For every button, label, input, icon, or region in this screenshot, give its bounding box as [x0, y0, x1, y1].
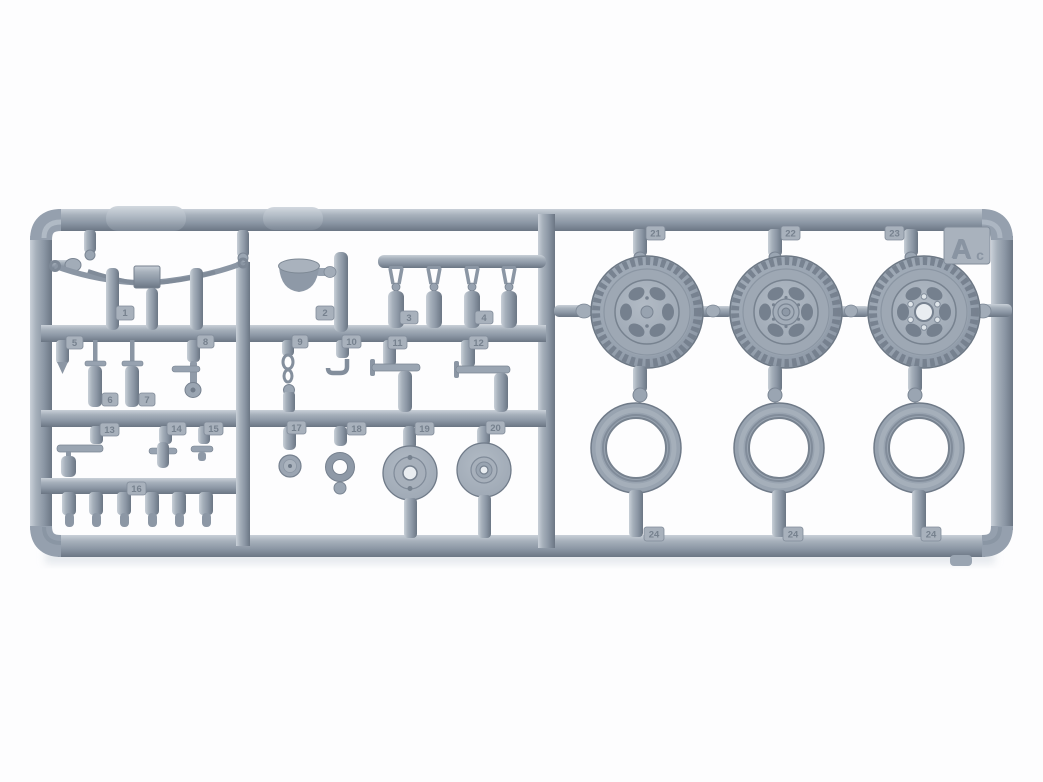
sprue-letter-plate: A A c [944, 227, 990, 265]
svg-text:5: 5 [72, 338, 78, 349]
frame-bottom-rail [58, 535, 985, 557]
tag-16: 16 [127, 482, 146, 495]
tag-4: 4 [475, 311, 493, 324]
tag-13: 13 [100, 423, 119, 436]
svg-text:10: 10 [346, 337, 357, 348]
svg-text:19: 19 [419, 424, 430, 435]
tag-10: 10 [342, 335, 361, 348]
frame-top-rail [58, 209, 985, 231]
svg-text:24: 24 [649, 530, 660, 541]
tag-14: 14 [167, 422, 186, 435]
svg-text:23: 23 [889, 229, 900, 240]
svg-text:13: 13 [104, 425, 115, 436]
svg-text:9: 9 [297, 337, 302, 348]
svg-text:8: 8 [203, 337, 208, 348]
tag-19: 19 [415, 422, 434, 435]
svg-text:20: 20 [490, 423, 501, 434]
svg-text:A: A [951, 233, 971, 264]
svg-text:21: 21 [650, 229, 661, 240]
tag-2: 2 [316, 306, 334, 320]
tag-18: 18 [347, 422, 366, 435]
frame-right-rail [991, 236, 1013, 530]
tag-3: 3 [400, 311, 418, 324]
svg-text:18: 18 [351, 424, 362, 435]
tag-5: 5 [66, 336, 83, 349]
svg-text:16: 16 [131, 484, 142, 495]
bottom-rail-tab [950, 555, 972, 566]
svg-text:14: 14 [171, 424, 182, 435]
sprue-photo: 1 2 3 4 5 6 7 8 9 10 11 12 13 14 15 16 1… [0, 0, 1043, 782]
svg-text:22: 22 [785, 229, 796, 240]
tag-24a: 24 [644, 527, 664, 541]
top-rail-bulge-left [106, 206, 186, 231]
sprue-svg: 1 2 3 4 5 6 7 8 9 10 11 12 13 14 15 16 1… [0, 0, 1043, 782]
tag-8: 8 [197, 335, 214, 348]
mini-rail-shackles [378, 255, 546, 268]
svg-text:12: 12 [473, 338, 484, 349]
tag-23: 23 [885, 226, 904, 240]
svg-text:4: 4 [481, 313, 487, 324]
vertical-connector [236, 262, 250, 546]
svg-text:15: 15 [208, 424, 219, 435]
svg-text:24: 24 [788, 530, 799, 541]
photo-background [0, 0, 1043, 782]
svg-text:17: 17 [291, 423, 302, 434]
tag-24c: 24 [921, 527, 941, 541]
svg-text:1: 1 [122, 308, 128, 319]
svg-text:2: 2 [322, 308, 327, 319]
tag-21: 21 [646, 226, 665, 240]
tag-12: 12 [469, 336, 488, 349]
tag-17: 17 [287, 421, 306, 434]
svg-text:6: 6 [107, 395, 112, 406]
tag-6: 6 [102, 393, 118, 406]
svg-text:11: 11 [392, 338, 403, 349]
svg-text:24: 24 [926, 530, 937, 541]
tag-7: 7 [139, 393, 155, 406]
tag-1: 1 [116, 306, 134, 320]
top-rail-bulge-right [263, 207, 323, 230]
svg-text:7: 7 [144, 395, 149, 406]
svg-text:c: c [976, 247, 984, 263]
tag-22: 22 [781, 226, 800, 240]
tag-24b: 24 [783, 527, 803, 541]
tag-11: 11 [388, 336, 407, 349]
tag-15: 15 [204, 422, 223, 435]
tag-9: 9 [292, 335, 308, 348]
svg-text:3: 3 [406, 313, 411, 324]
tag-20: 20 [486, 421, 505, 434]
